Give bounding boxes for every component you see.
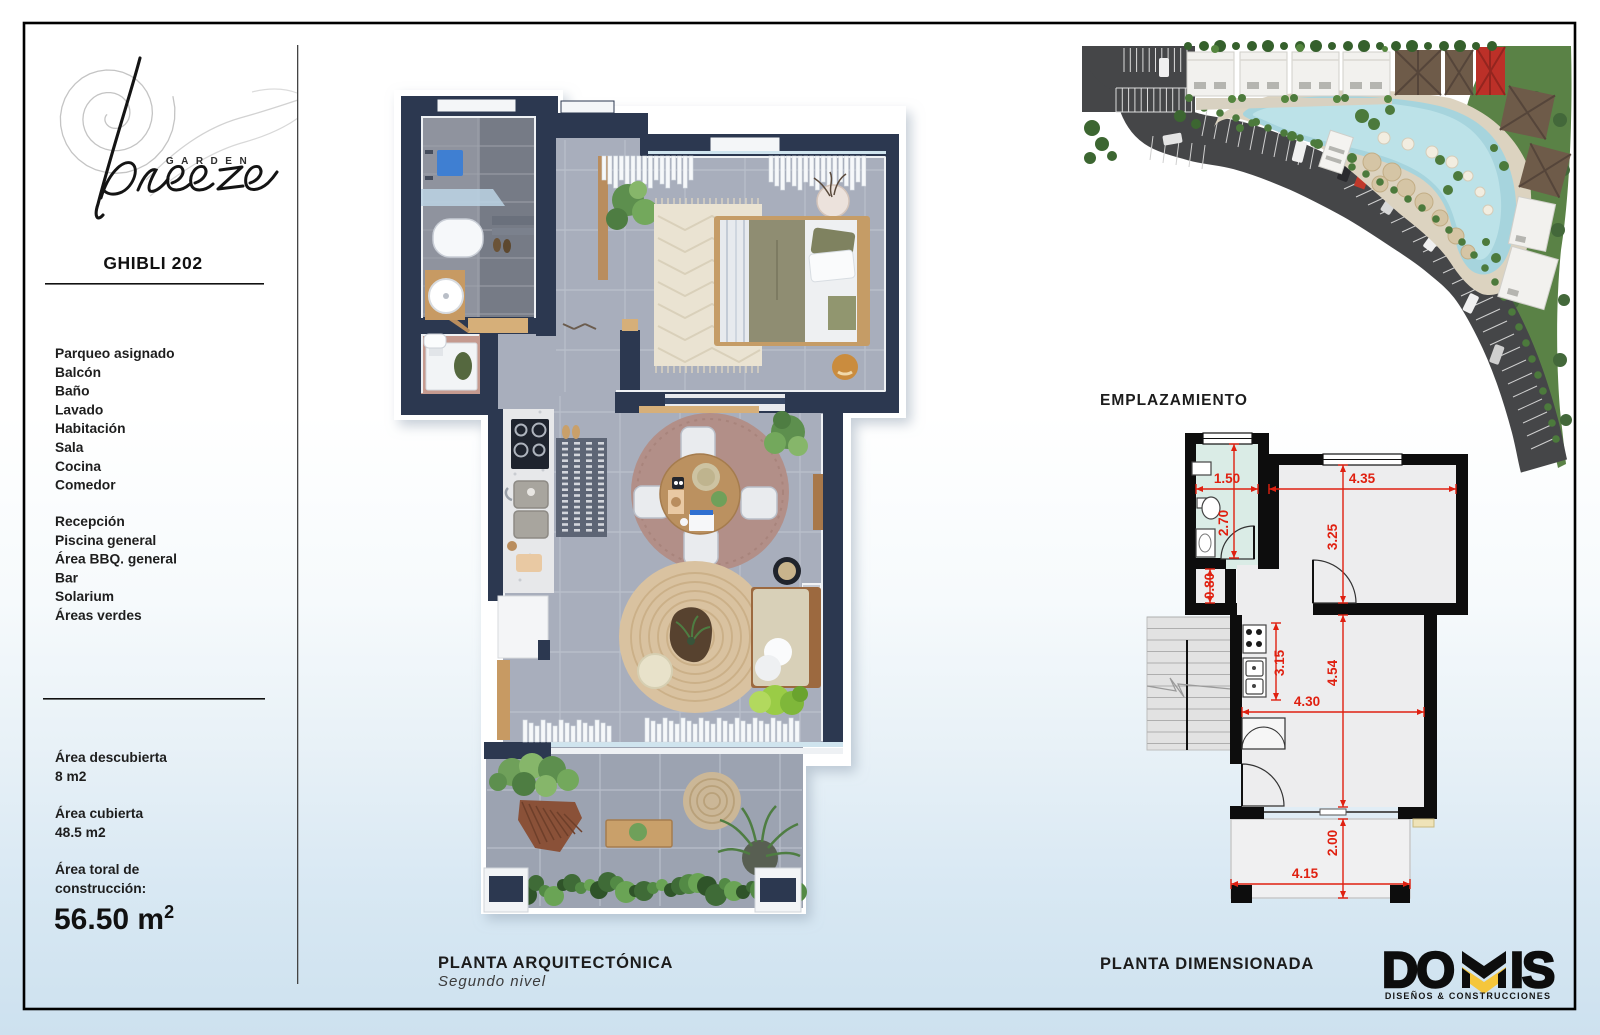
- svg-text:2.00: 2.00: [1325, 830, 1340, 856]
- svg-text:Área descubierta8 m2Área cubie: Área descubierta8 m2Área cubierta48.5 m2…: [55, 749, 167, 896]
- svg-text:GHIBLI 202: GHIBLI 202: [103, 253, 202, 273]
- svg-text:DO: DO: [1382, 942, 1453, 998]
- svg-text:Parqueo asignadoBalcónBañoLava: Parqueo asignadoBalcónBañoLavadoHabitaci…: [55, 346, 175, 493]
- svg-text:EMPLAZAMIENTO: EMPLAZAMIENTO: [1100, 392, 1248, 409]
- svg-text:4.54: 4.54: [1325, 659, 1340, 686]
- svg-text:PLANTA ARQUITECTÓNICA: PLANTA ARQUITECTÓNICA: [438, 953, 673, 972]
- svg-text:2.70: 2.70: [1216, 510, 1231, 536]
- svg-text:4.35: 4.35: [1349, 471, 1376, 486]
- svg-text:IS: IS: [1510, 942, 1554, 998]
- svg-text:3.15: 3.15: [1272, 649, 1287, 676]
- svg-text:56.50 m2: 56.50 m2: [54, 902, 174, 936]
- svg-text:RecepciónPiscina generalÁrea B: RecepciónPiscina generalÁrea BBQ. genera…: [55, 514, 177, 623]
- svg-text:DISEÑOS & CONSTRUCCIONES: DISEÑOS & CONSTRUCCIONES: [1385, 991, 1551, 1001]
- svg-text:4.15: 4.15: [1292, 866, 1319, 881]
- svg-text:0.80: 0.80: [1202, 573, 1217, 599]
- svg-text:Segundo nivel: Segundo nivel: [438, 973, 546, 990]
- svg-text:1.50: 1.50: [1214, 471, 1240, 486]
- svg-text:3.25: 3.25: [1325, 523, 1340, 550]
- svg-text:4.30: 4.30: [1294, 694, 1320, 709]
- svg-text:PLANTA DIMENSIONADA: PLANTA DIMENSIONADA: [1100, 955, 1314, 973]
